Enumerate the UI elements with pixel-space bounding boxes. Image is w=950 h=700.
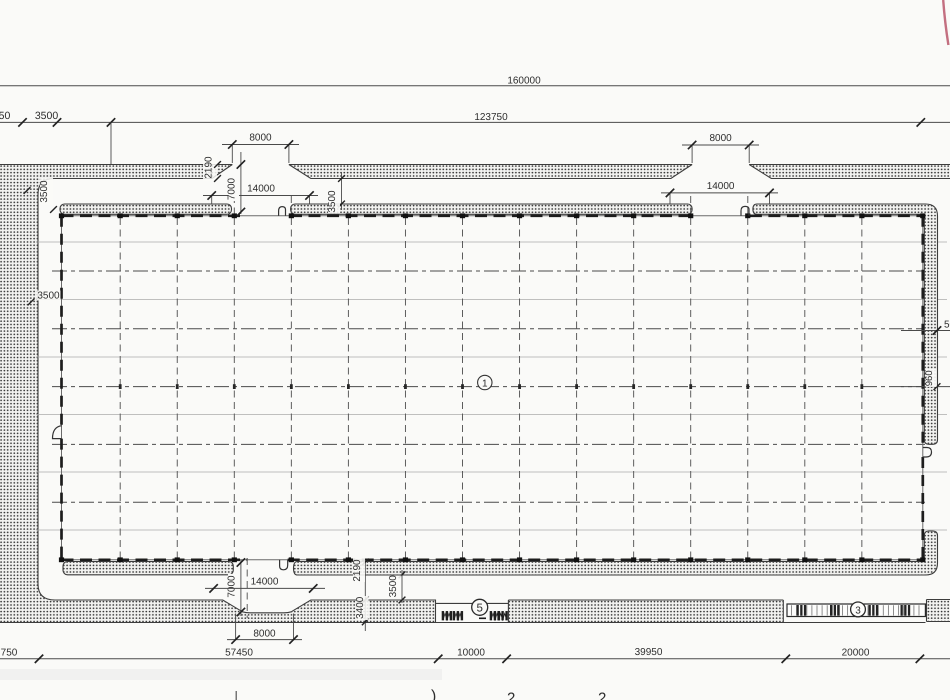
svg-text:3400: 3400 bbox=[355, 596, 366, 619]
svg-text:7000: 7000 bbox=[226, 575, 237, 598]
svg-text:8000: 8000 bbox=[253, 628, 276, 639]
svg-text:8000: 8000 bbox=[249, 133, 272, 144]
svg-text:750: 750 bbox=[1, 648, 18, 659]
svg-text:123750: 123750 bbox=[474, 112, 508, 123]
svg-text:1: 1 bbox=[482, 378, 488, 389]
svg-text:3500: 3500 bbox=[37, 291, 60, 302]
svg-text:10000: 10000 bbox=[457, 648, 485, 659]
svg-text:3500: 3500 bbox=[327, 190, 338, 213]
svg-text:160000: 160000 bbox=[507, 76, 541, 87]
svg-text:3500: 3500 bbox=[39, 180, 50, 203]
svg-text:2190: 2190 bbox=[352, 559, 363, 582]
svg-text:50: 50 bbox=[0, 110, 10, 122]
svg-text:2: 2 bbox=[507, 690, 515, 700]
svg-text:14000: 14000 bbox=[251, 576, 279, 587]
svg-text:7000: 7000 bbox=[226, 177, 237, 200]
svg-text:3500: 3500 bbox=[388, 575, 399, 598]
svg-text:20000: 20000 bbox=[842, 648, 870, 659]
svg-text:14000: 14000 bbox=[247, 184, 275, 195]
svg-text:14000: 14000 bbox=[707, 181, 735, 192]
svg-text:2190: 2190 bbox=[204, 156, 215, 179]
svg-text:3: 3 bbox=[855, 605, 861, 616]
svg-text:): ) bbox=[431, 688, 436, 700]
svg-text:8000: 8000 bbox=[709, 133, 732, 144]
svg-text:5: 5 bbox=[476, 603, 482, 615]
svg-text:50: 50 bbox=[944, 320, 950, 331]
svg-text:2: 2 bbox=[598, 690, 606, 700]
svg-text:39950: 39950 bbox=[635, 647, 663, 658]
svg-text:57450: 57450 bbox=[225, 648, 253, 659]
svg-text:960: 960 bbox=[924, 370, 935, 386]
svg-text:3500: 3500 bbox=[35, 110, 59, 122]
